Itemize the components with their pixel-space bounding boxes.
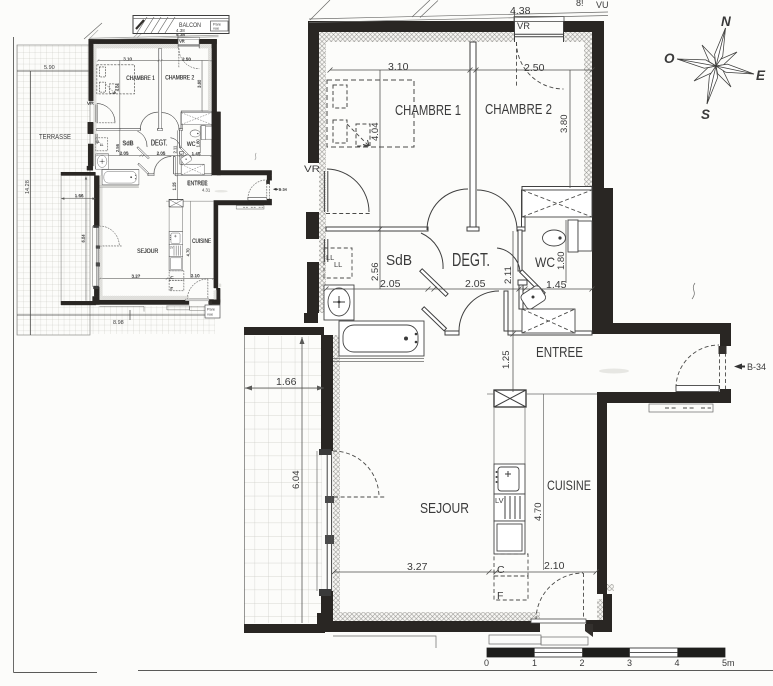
svg-text:6.04: 6.04	[291, 471, 302, 490]
svg-text:SEJOUR: SEJOUR	[420, 500, 469, 517]
svg-text:SdB: SdB	[386, 252, 412, 269]
svg-text:E: E	[756, 68, 766, 83]
svg-text:LL: LL	[334, 260, 342, 269]
svg-text:2: 2	[580, 658, 585, 668]
svg-text:8!: 8!	[576, 0, 584, 8]
svg-text:DEGT.: DEGT.	[452, 250, 490, 270]
svg-text:5m: 5m	[722, 658, 735, 668]
svg-text:vue: vue	[213, 27, 219, 31]
svg-text:8.98: 8.98	[113, 320, 124, 326]
svg-text:3.10: 3.10	[388, 61, 409, 73]
svg-text:TERRASSE: TERRASSE	[39, 132, 71, 141]
svg-text:2.11: 2.11	[503, 266, 514, 284]
svg-text:1.66: 1.66	[276, 376, 297, 388]
svg-text:Pare: Pare	[207, 308, 215, 312]
svg-text:4.04: 4.04	[370, 123, 381, 142]
svg-text:VR: VR	[304, 164, 320, 175]
svg-text:ENTREE: ENTREE	[536, 344, 583, 361]
svg-text:CHAMBRE 1: CHAMBRE 1	[395, 102, 461, 119]
svg-text:N: N	[721, 14, 731, 29]
svg-text:VR: VR	[517, 21, 530, 32]
svg-text:F: F	[497, 590, 503, 602]
svg-text:0: 0	[484, 658, 489, 668]
svg-text:LV: LV	[495, 496, 504, 505]
svg-text:14.28: 14.28	[25, 180, 31, 194]
svg-text:1: 1	[532, 658, 537, 668]
svg-text:4.31: 4.31	[202, 188, 211, 193]
svg-text:1.80: 1.80	[556, 252, 567, 271]
svg-text:S: S	[701, 107, 710, 122]
svg-text:4.38: 4.38	[176, 28, 185, 33]
svg-text:3.80: 3.80	[559, 115, 570, 134]
svg-text:CHAMBRE 2: CHAMBRE 2	[485, 101, 552, 118]
svg-text:2.50: 2.50	[524, 62, 545, 74]
svg-text:5.90: 5.90	[44, 65, 55, 71]
svg-text:2.05: 2.05	[465, 278, 486, 290]
svg-text:B-34: B-34	[747, 362, 766, 372]
svg-text:CUISINE: CUISINE	[547, 477, 591, 493]
svg-text:4: 4	[675, 658, 680, 668]
svg-text:2.05: 2.05	[380, 278, 401, 290]
svg-text:1.25: 1.25	[501, 351, 512, 370]
svg-text:WC: WC	[535, 254, 555, 270]
svg-text:1.45: 1.45	[546, 279, 567, 291]
svg-text:4.70: 4.70	[533, 503, 544, 522]
svg-text:O: O	[664, 51, 675, 66]
svg-text:4.38: 4.38	[510, 5, 531, 17]
svg-text:2.10: 2.10	[544, 560, 565, 572]
svg-text:vue: vue	[207, 313, 213, 317]
svg-text:VU: VU	[596, 0, 609, 10]
svg-text:3: 3	[627, 658, 632, 668]
svg-text:3.27: 3.27	[407, 561, 428, 573]
